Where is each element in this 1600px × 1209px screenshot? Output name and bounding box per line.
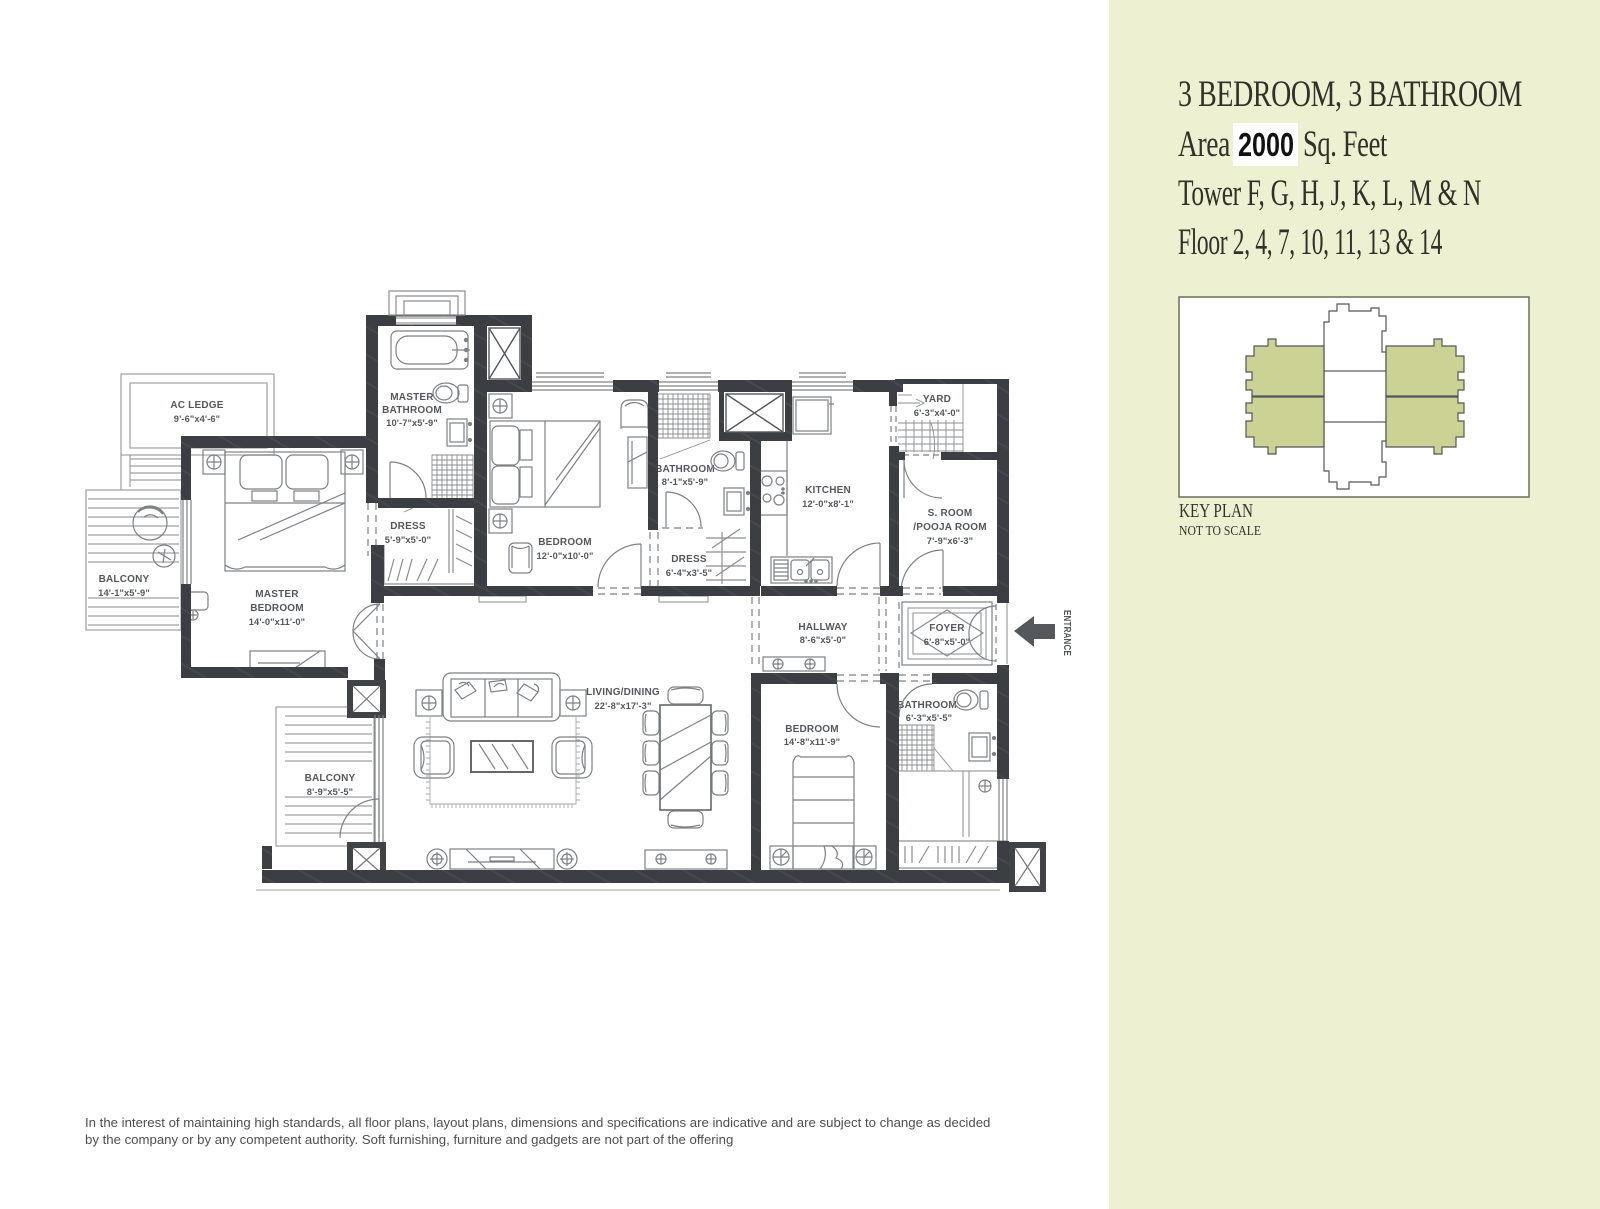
svg-text:AC LEDGE: AC LEDGE xyxy=(170,400,223,411)
svg-text:BEDROOM: BEDROOM xyxy=(785,724,839,735)
svg-text:BATHROOM: BATHROOM xyxy=(655,464,715,475)
svg-text:5'-9"x5'-0": 5'-9"x5'-0" xyxy=(385,535,431,545)
svg-text:BATHROOM: BATHROOM xyxy=(897,700,957,711)
svg-text:22'-8"x17'-3": 22'-8"x17'-3" xyxy=(595,701,652,711)
svg-text:2000: 2000 xyxy=(1238,126,1294,163)
svg-text:9'-6"x4'-6": 9'-6"x4'-6" xyxy=(174,414,220,424)
svg-text:NOT TO SCALE: NOT TO SCALE xyxy=(1179,524,1261,539)
svg-text:8'-9"x5'-5": 8'-9"x5'-5" xyxy=(307,787,353,797)
svg-text:14'-8"x11'-9": 14'-8"x11'-9" xyxy=(784,737,840,747)
svg-text:BATHROOM: BATHROOM xyxy=(382,405,442,416)
svg-text:BALCONY: BALCONY xyxy=(99,574,150,585)
svg-text:KITCHEN: KITCHEN xyxy=(805,485,851,496)
svg-text:6'-8"x5'-0": 6'-8"x5'-0" xyxy=(924,637,970,647)
svg-text:14'-1"x5'-9": 14'-1"x5'-9" xyxy=(98,588,150,598)
svg-text:/POOJA ROOM: /POOJA ROOM xyxy=(913,522,987,533)
svg-text:Floor 2, 4, 7, 10, 11, 13 & 14: Floor 2, 4, 7, 10, 11, 13 & 14 xyxy=(1178,222,1442,263)
svg-text:S. ROOM: S. ROOM xyxy=(928,508,973,519)
svg-text:DRESS: DRESS xyxy=(390,521,426,532)
svg-text:12'-0"x10'-0": 12'-0"x10'-0" xyxy=(537,551,594,561)
svg-text:YARD: YARD xyxy=(923,394,951,405)
svg-text:7'-9"x6'-3": 7'-9"x6'-3" xyxy=(927,536,973,546)
svg-text:by the company or by any compe: by the company or by any competent autho… xyxy=(85,1132,733,1147)
svg-text:3 BEDROOM, 3 BATHROOM: 3 BEDROOM, 3 BATHROOM xyxy=(1178,74,1522,115)
svg-text:BEDROOM: BEDROOM xyxy=(538,537,592,548)
svg-text:ENTRANCE: ENTRANCE xyxy=(1061,610,1072,656)
svg-text:14'-0"x11'-0": 14'-0"x11'-0" xyxy=(249,617,305,627)
svg-text:FOYER: FOYER xyxy=(929,623,965,634)
svg-text:Sq. Feet: Sq. Feet xyxy=(1303,124,1388,165)
svg-text:In the interest of maintaining: In the interest of maintaining high stan… xyxy=(85,1115,990,1130)
svg-text:8'-6"x5'-0": 8'-6"x5'-0" xyxy=(800,635,846,645)
svg-text:8'-1"x5'-9": 8'-1"x5'-9" xyxy=(662,477,708,487)
svg-text:MASTER: MASTER xyxy=(390,392,434,403)
svg-text:BALCONY: BALCONY xyxy=(305,773,356,784)
svg-text:6'-3"x5'-5": 6'-3"x5'-5" xyxy=(906,713,952,723)
svg-text:10'-7"x5'-9": 10'-7"x5'-9" xyxy=(386,418,438,428)
svg-text:Area: Area xyxy=(1178,124,1230,165)
svg-text:KEY PLAN: KEY PLAN xyxy=(1179,500,1253,522)
svg-text:6'-3"x4'-0": 6'-3"x4'-0" xyxy=(914,408,960,418)
svg-text:6'-4"x3'-5": 6'-4"x3'-5" xyxy=(666,568,712,578)
svg-text:BEDROOM: BEDROOM xyxy=(250,603,304,614)
svg-text:12'-0"x8'-1": 12'-0"x8'-1" xyxy=(802,499,854,509)
svg-text:MASTER: MASTER xyxy=(255,589,299,600)
svg-text:Tower F, G, H, J, K, L, M & N: Tower F, G, H, J, K, L, M & N xyxy=(1178,173,1481,214)
svg-text:HALLWAY: HALLWAY xyxy=(798,622,847,633)
svg-text:DRESS: DRESS xyxy=(671,554,707,565)
svg-text:LIVING/DINING: LIVING/DINING xyxy=(586,687,660,698)
